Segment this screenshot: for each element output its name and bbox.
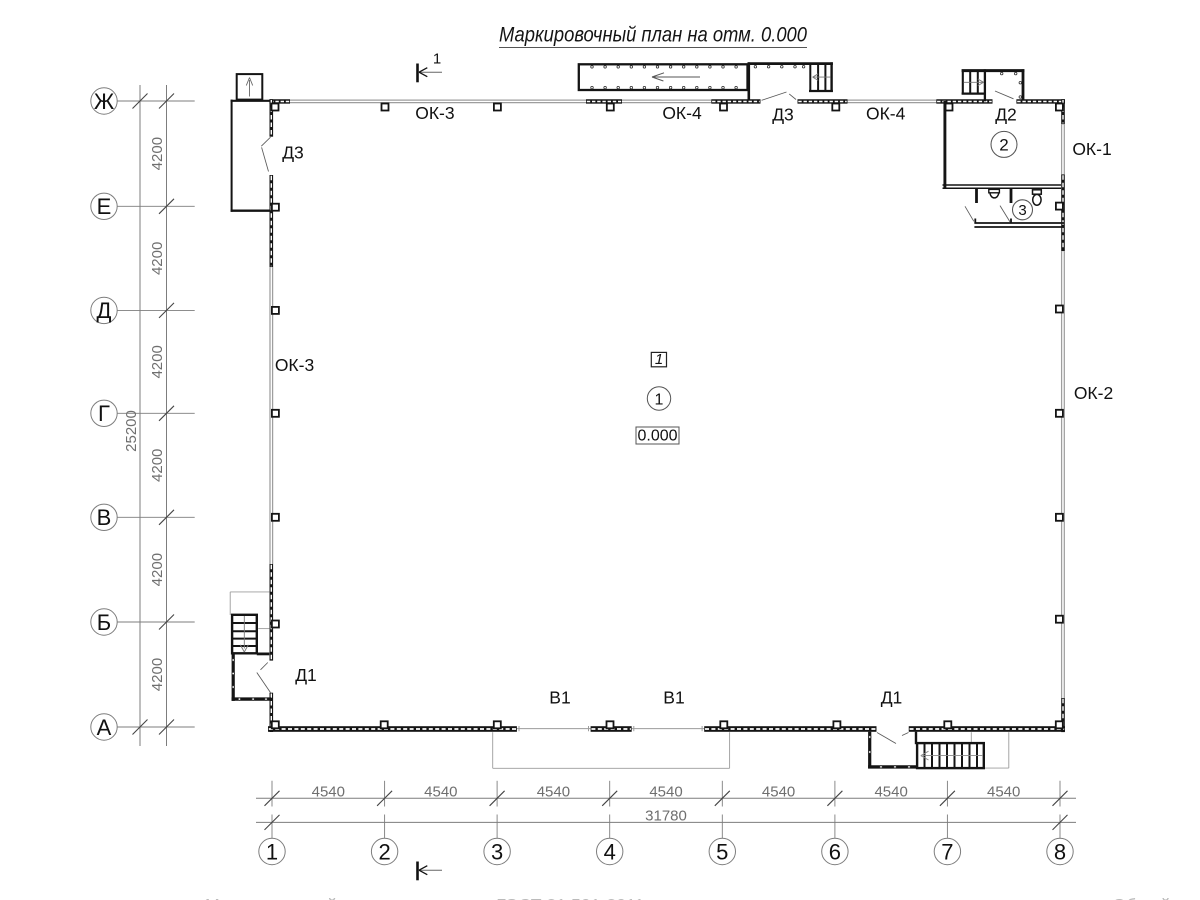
svg-text:1: 1: [433, 51, 441, 68]
svg-text:2: 2: [378, 839, 390, 864]
svg-text:Г: Г: [98, 401, 110, 426]
svg-text:Д: Д: [97, 298, 112, 323]
svg-text:3: 3: [1018, 202, 1026, 219]
svg-text:1: 1: [266, 839, 278, 864]
svg-text:4540: 4540: [424, 784, 457, 801]
svg-text:8: 8: [1054, 839, 1066, 864]
svg-text:4: 4: [604, 839, 616, 864]
svg-text:ОК-4: ОК-4: [866, 103, 906, 123]
svg-text:Д2: Д2: [995, 105, 1017, 125]
svg-text:4540: 4540: [762, 784, 795, 801]
svg-text:4540: 4540: [649, 784, 682, 801]
svg-text:ОК-4: ОК-4: [662, 103, 702, 123]
svg-text:В1: В1: [663, 688, 684, 708]
svg-text:ОК-3: ОК-3: [415, 103, 454, 123]
svg-text:4200: 4200: [149, 658, 166, 691]
svg-text:Маркировочный план выполнен по: Маркировочный план выполнен по ГОСТ 21.5…: [205, 896, 1200, 900]
svg-text:4200: 4200: [149, 553, 166, 586]
svg-text:4200: 4200: [149, 242, 166, 275]
svg-text:Б: Б: [97, 610, 111, 635]
svg-text:1: 1: [655, 351, 663, 368]
svg-text:В1: В1: [549, 688, 570, 708]
svg-text:5: 5: [716, 839, 728, 864]
svg-text:4200: 4200: [149, 137, 166, 170]
svg-text:4200: 4200: [149, 449, 166, 482]
svg-text:2: 2: [999, 135, 1008, 154]
svg-text:Д3: Д3: [282, 143, 304, 163]
svg-text:6: 6: [829, 839, 841, 864]
svg-text:Д1: Д1: [295, 665, 317, 685]
svg-text:7: 7: [941, 839, 953, 864]
svg-text:4540: 4540: [874, 784, 907, 801]
svg-text:4540: 4540: [312, 784, 345, 801]
svg-text:0.000: 0.000: [637, 428, 677, 445]
svg-text:Е: Е: [97, 194, 112, 219]
svg-text:4200: 4200: [149, 345, 166, 378]
svg-text:3: 3: [491, 839, 503, 864]
svg-text:4540: 4540: [537, 784, 570, 801]
svg-text:ОК-2: ОК-2: [1074, 383, 1113, 403]
svg-text:Ж: Ж: [94, 89, 115, 114]
svg-text:Маркировочный план на отм. 0.0: Маркировочный план на отм. 0.000: [499, 24, 807, 47]
svg-text:1: 1: [655, 391, 664, 408]
svg-text:ОК-1: ОК-1: [1072, 139, 1111, 159]
svg-text:А: А: [97, 715, 112, 740]
svg-text:Д3: Д3: [772, 104, 794, 124]
svg-text:25200: 25200: [123, 410, 140, 452]
svg-text:Д1: Д1: [881, 688, 903, 708]
svg-text:В: В: [97, 505, 112, 530]
svg-text:31780: 31780: [645, 808, 687, 825]
svg-text:ОК-3: ОК-3: [275, 355, 314, 375]
svg-text:4540: 4540: [987, 784, 1020, 801]
